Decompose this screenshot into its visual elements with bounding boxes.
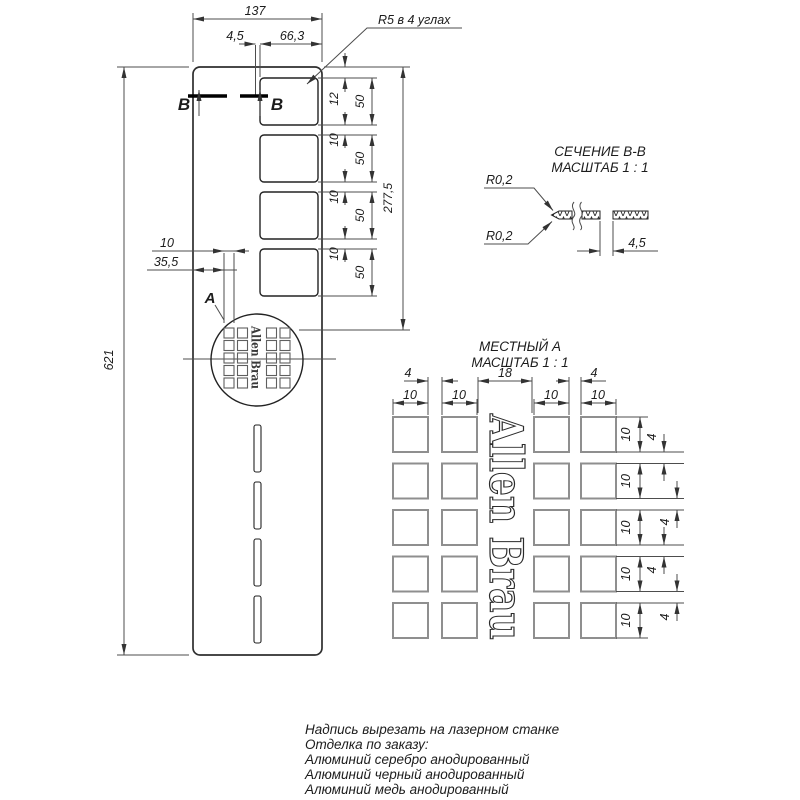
logo-square — [238, 328, 248, 338]
detail-square — [534, 510, 569, 545]
slot-1 — [260, 78, 318, 125]
note-line: Алюминий черный анодированный — [304, 767, 525, 782]
dim-width-label: 137 — [245, 4, 267, 18]
corner-note-label: R5 в 4 углах — [378, 13, 451, 27]
row-height-label: 10 — [619, 428, 633, 442]
detail-square — [581, 510, 616, 545]
detail-top-dims: 4 18 4 10 10 10 10 — [393, 366, 616, 415]
logo-square — [267, 353, 277, 363]
right-dim-ladder: 12 50 50 50 50 10 10 10 277,5 — [299, 53, 410, 330]
note-line: Отделка по заказу: — [305, 737, 429, 752]
dim-edge-label: 4,5 — [226, 29, 243, 43]
dim-4-5-edge: 4,5 — [226, 29, 260, 96]
logo-square — [224, 378, 234, 388]
detail-view: МЕСТНЫЙ А МАСШТАБ 1 : 1 Allen Brau 4 18 — [393, 338, 684, 640]
slot-gap-label: 10 — [327, 133, 341, 147]
slot-height-label: 50 — [353, 266, 367, 280]
top-gap-label: 18 — [498, 366, 512, 380]
detail-square — [534, 417, 569, 452]
detail-square — [393, 603, 428, 638]
logo-square — [280, 353, 290, 363]
detail-square — [581, 557, 616, 592]
detail-leader — [215, 305, 224, 320]
col-width-label: 10 — [452, 388, 466, 402]
logo-square — [238, 341, 248, 351]
narrow-slot-group — [254, 425, 261, 643]
detail-label: A — [204, 290, 216, 307]
narrow-slot-1 — [254, 425, 261, 472]
slot-gap-label: 10 — [327, 190, 341, 204]
detail-square — [534, 557, 569, 592]
section-label-left: B — [178, 95, 190, 114]
dim-logo-square-label: 10 — [160, 236, 174, 250]
detail-right-dims: 10 10 10 10 10 4 4 4 4 — [616, 417, 684, 638]
detail-square — [393, 557, 428, 592]
drawing-canvas: Allen Brau 137 4,5 66,3 R5 в 4 углах — [0, 0, 800, 800]
slot-2 — [260, 135, 318, 182]
section-bar-left-a — [552, 211, 573, 219]
dim-66-3: 66,3 — [260, 29, 322, 44]
logo-square — [224, 366, 234, 376]
logo-square — [238, 353, 248, 363]
radius-top-label: R0,2 — [486, 173, 512, 187]
dim-section-gap: 4,5 — [577, 221, 658, 256]
narrow-slot-3 — [254, 539, 261, 586]
section-scale: МАСШТАБ 1 : 1 — [551, 160, 648, 175]
detail-square — [534, 464, 569, 499]
logo-square — [238, 366, 248, 376]
note-line: Алюминий медь анодированный — [304, 782, 509, 797]
logo-square — [280, 341, 290, 351]
left-dims: 621 10 35,5 A — [102, 67, 249, 655]
narrow-slot-4 — [254, 596, 261, 643]
logo-square — [224, 328, 234, 338]
section-view: СЕЧЕНИЕ В-В МАСШТАБ 1 : 1 R0,2 R0,2 4,5 — [484, 144, 658, 256]
detail-square — [442, 464, 477, 499]
slot-height-label: 50 — [353, 95, 367, 109]
detail-scale: МАСШТАБ 1 : 1 — [471, 355, 568, 370]
drawing-sheet: Allen Brau 137 4,5 66,3 R5 в 4 углах — [0, 0, 800, 800]
logo-square — [267, 341, 277, 351]
section-label-right: B — [271, 95, 283, 114]
row-gap-label: 4 — [645, 433, 659, 440]
detail-square — [442, 510, 477, 545]
detail-square — [581, 603, 616, 638]
row-gap-label: 4 — [658, 613, 672, 620]
slot-gap-label: 10 — [327, 247, 341, 261]
radius-callout-top: R0,2 — [484, 173, 553, 211]
col-width-label: 10 — [591, 388, 605, 402]
row-height-label: 10 — [619, 521, 633, 535]
dim-span-label: 277,5 — [381, 183, 395, 214]
top-gap-label: 4 — [405, 366, 412, 380]
dim-top-gap-label: 12 — [327, 92, 341, 106]
section-bar-right — [613, 211, 648, 219]
detail-square — [442, 603, 477, 638]
slot-4 — [260, 249, 318, 296]
row-height-label: 10 — [619, 474, 633, 488]
break-line — [580, 202, 583, 230]
radius-callout-bottom: R0,2 — [484, 222, 552, 245]
slot-height-label: 50 — [353, 152, 367, 166]
detail-square — [534, 603, 569, 638]
radius-bottom-label: R0,2 — [486, 229, 512, 243]
slot-group — [260, 78, 318, 296]
notes-block: Надпись вырезать на лазерном станке Отде… — [304, 722, 559, 797]
detail-square — [442, 557, 477, 592]
row-height-label: 10 — [619, 567, 633, 581]
row-gap-label: 4 — [658, 518, 672, 525]
detail-square — [393, 417, 428, 452]
logo-text-small: Allen Brau — [249, 325, 264, 389]
dim-logo-offset-label: 35,5 — [154, 255, 178, 269]
section-title: СЕЧЕНИЕ В-В — [554, 144, 646, 159]
note-line: Алюминий серебро анодированный — [304, 752, 530, 767]
col-width-label: 10 — [544, 388, 558, 402]
dim-slot-width-label: 66,3 — [280, 29, 304, 43]
logo-square — [238, 378, 248, 388]
logo-square — [280, 378, 290, 388]
slot-3 — [260, 192, 318, 239]
row-gap-label: 4 — [645, 566, 659, 573]
detail-title: МЕСТНЫЙ А — [479, 338, 561, 354]
logo-square — [267, 366, 277, 376]
detail-square — [393, 510, 428, 545]
logo-text-large: Allen Brau — [479, 413, 533, 640]
logo-detail-circle: Allen Brau — [183, 314, 336, 406]
logo-square — [224, 341, 234, 351]
logo-square — [280, 366, 290, 376]
dim-section-gap-label: 4,5 — [628, 236, 645, 250]
slot-height-label: 50 — [353, 209, 367, 223]
logo-square — [267, 378, 277, 388]
logo-square — [267, 328, 277, 338]
detail-square — [393, 464, 428, 499]
logo-square — [280, 328, 290, 338]
dim-height-label: 621 — [102, 350, 116, 371]
detail-square — [581, 417, 616, 452]
col-width-label: 10 — [403, 388, 417, 402]
corner-radius-note: R5 в 4 углах — [307, 13, 462, 84]
logo-square — [224, 353, 234, 363]
narrow-slot-2 — [254, 482, 261, 529]
row-height-label: 10 — [619, 614, 633, 628]
section-bar-left-b — [582, 211, 600, 219]
detail-square — [581, 464, 616, 499]
detail-square — [442, 417, 477, 452]
top-gap-label: 4 — [591, 366, 598, 380]
note-line: Надпись вырезать на лазерном станке — [305, 722, 559, 737]
